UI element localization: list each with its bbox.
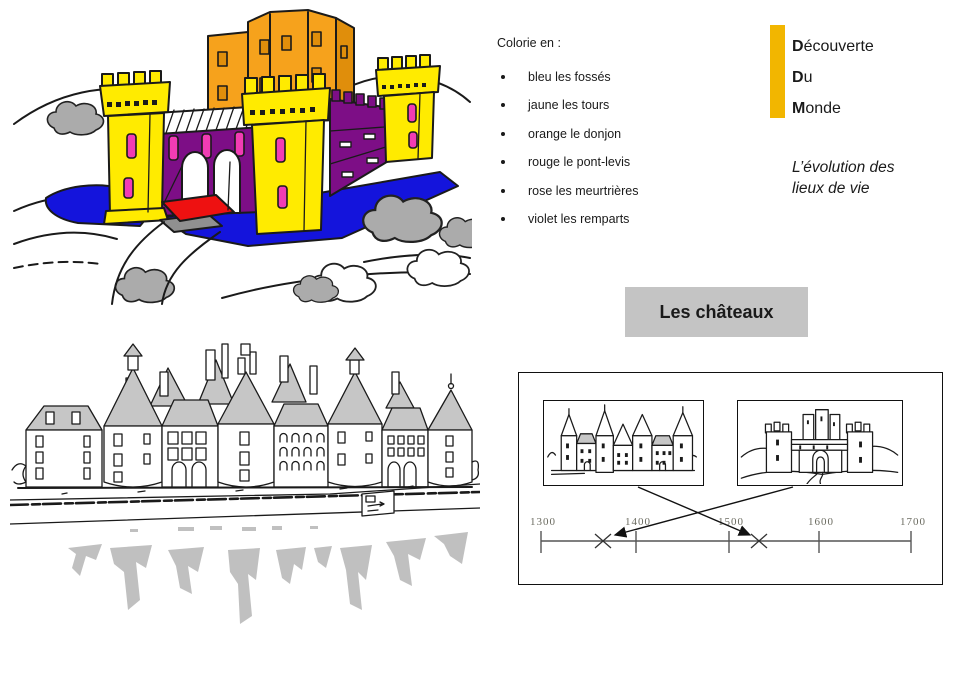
timeline-panel: 1300 1400 1500 1600 1700 [518, 372, 943, 585]
bullet-icon [501, 160, 505, 164]
brand-line: Du [792, 62, 874, 93]
year-label: 1600 [808, 516, 834, 528]
list-item: orange le donjon [497, 127, 727, 155]
list-item: bleu les fossés [497, 70, 727, 98]
list-item: rose les meurtrières [497, 184, 727, 212]
tower-left-shape [100, 71, 170, 224]
water-reflection [68, 526, 468, 624]
bullet-icon [501, 217, 505, 221]
bullet-icon [501, 75, 505, 79]
bullet-icon [501, 189, 505, 193]
timeline-axis [541, 531, 911, 553]
list-item: violet les remparts [497, 212, 727, 240]
section-title-box: Les châteaux [625, 287, 808, 337]
bullet-icon [501, 132, 505, 136]
chateau-facade [12, 344, 478, 487]
coloring-list: bleu les fossés jaune les tours orange l… [497, 70, 727, 240]
year-label: 1700 [900, 516, 926, 528]
section-title: Les châteaux [659, 302, 773, 323]
brand-line: Découverte [792, 31, 874, 62]
waterfront-lines [10, 484, 480, 524]
coloring-instructions: Colorie en : bleu les fossés jaune les t… [497, 36, 727, 240]
year-label: 1300 [530, 516, 556, 528]
timeline: 1300 1400 1500 1600 1700 [519, 373, 941, 583]
lesson-subtitle: L’évolution des lieux de vie [792, 157, 895, 199]
renaissance-chateau-drawing [10, 342, 480, 642]
list-item: jaune les tours [497, 98, 727, 126]
brand-title: Découverte Du Monde [792, 31, 874, 124]
brand-accent-bar [770, 25, 785, 118]
coloring-title: Colorie en : [497, 36, 727, 50]
worksheet-page: Colorie en : bleu les fossés jaune les t… [0, 0, 962, 681]
sluice-structure [362, 491, 394, 516]
tower-gatehouse-shape [242, 74, 330, 234]
brand-line: Monde [792, 93, 874, 124]
background-roofs [126, 344, 414, 408]
coloring-castle-illustration [12, 6, 472, 306]
connection-arrows [615, 487, 793, 535]
tower-right-shape [376, 55, 440, 162]
list-item: rouge le pont-levis [497, 155, 727, 183]
bullet-icon [501, 103, 505, 107]
